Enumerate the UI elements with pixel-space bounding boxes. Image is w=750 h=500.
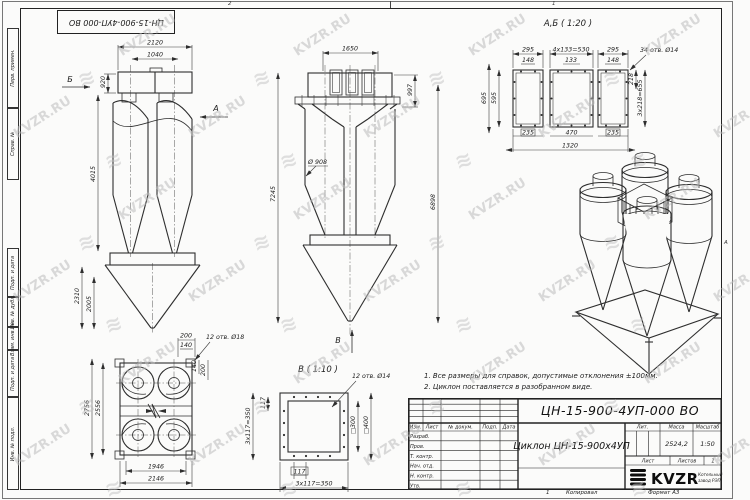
margin-box-podp-data-1: Подп. и дата — [7, 248, 19, 297]
dim-2310: 2310 — [74, 288, 81, 304]
logo-subtitle-2: завод РЭП — [698, 478, 721, 483]
corner-stamp-number: ЦН-15-900-4УП-000 ВО — [69, 18, 164, 27]
dim-695: 695 — [481, 92, 488, 104]
dim-7245: 7245 — [270, 186, 277, 202]
dim-200-top: 200 — [180, 333, 192, 340]
dim-2120: 2120 — [147, 40, 163, 47]
col-podp: Подп. — [482, 425, 497, 431]
mass-value: 2524,2 — [665, 440, 688, 448]
copied-label: Копировал — [566, 490, 597, 496]
dim-920: 920 — [100, 76, 107, 88]
left-margin-column: Перв. примен. Справ. № Подп. и дата Инв.… — [7, 8, 19, 490]
dim-235-left: 235 — [522, 130, 534, 137]
kvzr-logo-text: KVZR — [651, 470, 699, 488]
front-dimensions: 1650 997 7245 6898 Ø 908 В — [270, 46, 438, 354]
plan-axes — [116, 359, 196, 459]
zone-marker-bottom: 1 — [546, 490, 550, 496]
row-prov: Пров. — [410, 444, 425, 450]
dim-2756: 2756 — [84, 400, 91, 416]
margin-box-vzam-inv: Взам. инв. № — [7, 327, 19, 350]
doc-number: ЦН-15-900-4УП-000 ВО — [541, 403, 699, 418]
margin-label: Подп. и дата — [10, 356, 16, 390]
dim-133: 133 — [565, 57, 577, 64]
arrow-label-b: Б — [67, 75, 73, 84]
dim-2146: 2146 — [148, 476, 164, 483]
dim-4x133: 4x133=530 — [552, 47, 589, 54]
dim-117-left: 117 — [260, 397, 267, 409]
front-outline — [295, 70, 400, 321]
arrow-label-a: А — [212, 104, 218, 113]
dim-117-bottom: 117 — [293, 468, 305, 475]
view-side: 2120 1040 920 4015 2310 2005 Б А — [50, 35, 270, 335]
view-front: 1650 997 7245 6898 Ø 908 В — [268, 35, 458, 355]
dim-2005: 2005 — [86, 296, 93, 312]
side-dimensions: 2120 1040 920 4015 2310 2005 Б А — [62, 40, 228, 330]
dim-140-top: 140 — [180, 342, 192, 349]
dim-3x218: 3x218=655 — [637, 79, 644, 116]
dim-295-right: 295 — [607, 47, 619, 54]
col-izm: Изм. — [410, 425, 422, 431]
format-label: Формат А3 — [648, 490, 679, 496]
view-title-v: В ( 1:10 ) — [298, 365, 338, 375]
logo-subtitle-1: Котельный — [698, 472, 723, 477]
margin-box-perv-primen: Перв. примен. — [7, 28, 19, 108]
flange-ab-outline — [513, 70, 628, 127]
dim-140-right: 140 — [191, 360, 198, 372]
dim-300: □300 — [350, 416, 357, 434]
margin-box-sprav-no: Справ. № — [7, 108, 19, 180]
corner-stamp: ЦН-15-900-4УП-000 ВО — [57, 10, 175, 34]
iso-cyclone-front — [623, 197, 671, 337]
callout-12-holes-18: 12 отв. Ø18 — [206, 333, 244, 341]
dim-295-left: 295 — [522, 47, 534, 54]
col-list: Лист — [425, 425, 440, 431]
bolt-holes — [514, 71, 628, 127]
row-nkontr: Н. контр. — [410, 474, 434, 480]
scale-label: Масштаб — [696, 425, 720, 431]
margin-box-inv-podl: Инв. № подл. — [7, 397, 19, 490]
scale-value: 1:50 — [700, 440, 715, 448]
view-isometric — [548, 140, 746, 380]
margin-label: Справ. № — [10, 132, 16, 156]
iso-cyclone-left — [580, 173, 626, 311]
mass-label: Масса — [669, 425, 685, 431]
sheet-label: Лист — [641, 459, 656, 465]
margin-box-podp-data-2: Подп. и дата — [7, 350, 19, 397]
row-nachotd: Нач. отд. — [410, 464, 434, 470]
arrow-label-v: В — [335, 336, 341, 345]
dim-3x117-bottom: 3x117=350 — [295, 481, 332, 488]
row-razrab: Разраб. — [410, 434, 430, 440]
zone-marker-top-left: 2 — [228, 1, 232, 7]
flange-v-dimensions: 12 отв. Ø14 117 3x117=350 117 3x117=350 … — [245, 372, 390, 492]
dim-218: 218 — [628, 73, 635, 85]
zone-marker-top-right: 1 — [552, 1, 556, 7]
iso-cyclone-right — [666, 175, 712, 313]
title-block: Изм. Лист № докум. Подп. Дата Разраб. Пр… — [408, 398, 722, 490]
plan-outline — [115, 359, 195, 459]
dim-4015: 4015 — [90, 166, 97, 182]
dim-1946: 1946 — [148, 464, 164, 471]
dim-997: 997 — [407, 84, 414, 96]
dim-diameter-908: Ø 908 — [307, 158, 327, 166]
note-line-2: 2. Циклон поставляется в разобранном вид… — [424, 382, 694, 393]
dim-148-right: 148 — [607, 57, 619, 64]
dim-148-left: 148 — [522, 57, 534, 64]
margin-label: Подп. и дата — [10, 255, 16, 289]
flange-v-outline — [280, 393, 348, 460]
dim-1650: 1650 — [342, 46, 358, 53]
callout-34-holes: 34 отв. Ø14 — [640, 46, 678, 54]
dim-400: □400 — [363, 416, 370, 434]
dim-200-right: 200 — [200, 364, 207, 376]
view-flange-v: В ( 1:10 ) 12 отв. Ø14 117 3x117=350 117 — [240, 355, 425, 497]
dim-235-right: 235 — [607, 130, 619, 137]
side-axes — [131, 65, 175, 333]
sheets-label: Листов — [677, 459, 697, 465]
row-tkontr: Т. контр. — [410, 454, 433, 460]
dim-470: 470 — [565, 130, 577, 137]
product-name: Циклон ЦН-15-900х4УП — [513, 441, 630, 452]
callout-12-holes-14: 12 отв. Ø14 — [352, 372, 390, 380]
lit-label: Лит. — [636, 425, 649, 431]
flange-ab-dimensions: 295 4x133=530 295 148 133 148 34 отв. Ø1… — [481, 46, 678, 152]
dim-1040: 1040 — [147, 52, 163, 59]
view-title-ab: А,Б ( 1:20 ) — [543, 19, 592, 29]
row-utv: Утв. — [410, 483, 421, 489]
notes-block: 1. Все размеры для справок, допустимые о… — [424, 371, 694, 393]
drawing-sheet: Перв. примен. Справ. № Подп. и дата Инв.… — [0, 0, 750, 500]
margin-label: Перв. примен. — [10, 49, 16, 87]
zone-tick — [390, 1, 391, 8]
dim-6898: 6898 — [430, 194, 437, 210]
margin-label: Инв. № подл. — [10, 426, 16, 461]
dim-3x117-left: 3x117=350 — [245, 407, 252, 444]
kvzr-logo-icon — [630, 469, 646, 486]
sheets-value: 1 — [711, 459, 714, 465]
col-data: Дата — [502, 425, 516, 431]
dim-595: 595 — [491, 92, 498, 104]
bolt-holes — [283, 396, 345, 457]
dim-2556: 2556 — [95, 400, 102, 416]
col-doc: № докум. — [447, 425, 473, 431]
note-line-1: 1. Все размеры для справок, допустимые о… — [424, 371, 694, 382]
